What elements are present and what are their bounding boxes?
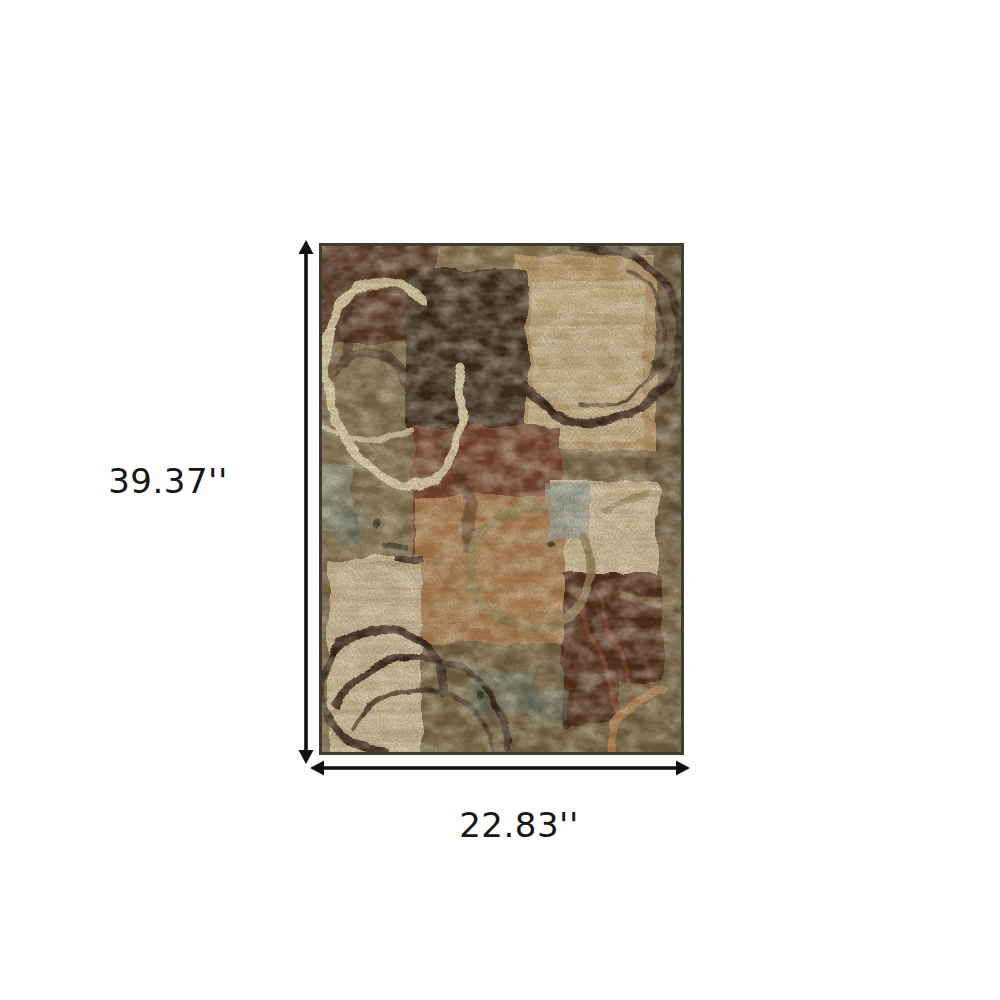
height-dimension-label: 39.37'' (88, 461, 248, 501)
height-dimension-arrow (297, 240, 315, 764)
width-dimension-label: 22.83'' (439, 805, 599, 845)
product-dimension-diagram: 39.37'' 22.83'' (0, 0, 1000, 1000)
rug-image (319, 243, 684, 755)
rug-artwork (319, 243, 684, 755)
width-dimension-arrow (310, 759, 690, 777)
rug-grain-overlay (319, 243, 684, 755)
arrowhead-right-icon (676, 761, 690, 776)
